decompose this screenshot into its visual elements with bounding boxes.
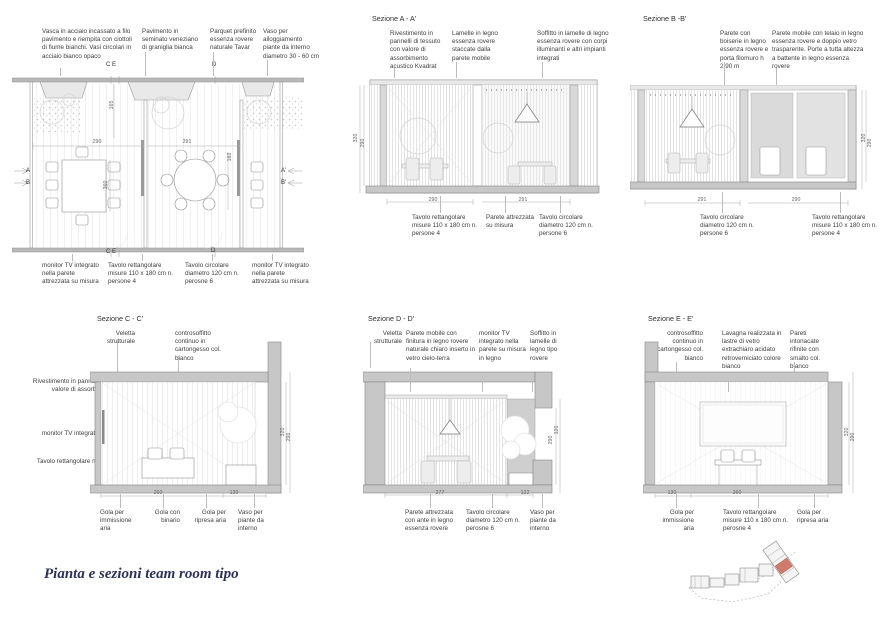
leader-line — [814, 494, 815, 508]
chair — [46, 198, 58, 208]
aa-note-parete: Parete attrezzata su misura — [486, 214, 536, 230]
leader-line — [430, 494, 431, 508]
cc-note-gola-immissione: Gola per immissione aria — [100, 509, 140, 534]
table-silhouette — [427, 456, 469, 461]
ee-dim-260: 260 — [733, 490, 742, 496]
leader-line — [840, 192, 841, 213]
leader-line — [542, 494, 543, 508]
keyplan-building — [740, 568, 758, 582]
bb-dim-h290: 290 — [867, 139, 873, 148]
chair — [161, 174, 173, 186]
plan-dim-165: 165 — [109, 101, 115, 110]
leader-line — [482, 382, 483, 392]
aa-dim-291: 291 — [519, 197, 528, 203]
leader-line — [410, 368, 411, 392]
leader-line — [213, 52, 214, 76]
keyplan-wing — [763, 541, 799, 583]
cc-note-vaso: Vaso per piante da interno — [238, 509, 278, 534]
chair — [46, 180, 58, 190]
cc-dim-260: 260 — [154, 490, 163, 496]
keyplan-building — [725, 574, 739, 585]
gravel-area — [243, 97, 302, 129]
bb-note-boiserie: Parete con boiserie in legno essenza rov… — [720, 30, 770, 71]
ceiling-band — [370, 80, 597, 85]
section-cc-title: Sezione C - C' — [97, 314, 143, 323]
floor-slab — [366, 186, 599, 193]
section-marker-a: A — [26, 168, 30, 174]
planter-box — [509, 473, 533, 485]
column — [570, 85, 578, 186]
rectangular-table — [62, 160, 106, 212]
leader-line — [254, 494, 255, 508]
leader-line — [532, 382, 533, 392]
structural-column — [535, 372, 552, 408]
bb-dim-290: 290 — [792, 197, 801, 203]
dd-note-parete-attrezzata: Parete attrezzata con ante in legno esse… — [405, 509, 463, 534]
chair — [175, 150, 187, 162]
dd-dim-122: 122 — [521, 490, 530, 496]
aa-dim-h320: 320 — [353, 134, 359, 143]
leader-line — [456, 62, 457, 78]
floor-slab — [90, 485, 281, 493]
cc-dim-h290: 290 — [286, 433, 292, 442]
leader-line — [117, 340, 118, 372]
leader-line — [370, 342, 371, 368]
cc-note-gola-binario: Gola con binario — [144, 509, 180, 525]
leader-line — [440, 196, 441, 213]
plan-top-wall — [12, 78, 304, 82]
ceiling-slab — [90, 372, 268, 382]
chair-silhouette — [760, 147, 780, 175]
sheet-title: Pianta e sezioni team room tipo — [44, 566, 239, 583]
slat-wall — [645, 90, 740, 182]
keyplan-building — [759, 564, 773, 576]
dd-dim-h290: 290 — [548, 436, 554, 445]
glass-whiteboard — [700, 402, 786, 446]
plan-dim-290: 290 — [93, 139, 102, 145]
chair — [721, 450, 734, 462]
aa-note-table-rect: Tavolo rettangolare misure 110 x 180 cm … — [412, 214, 482, 239]
leader-line — [145, 52, 146, 76]
column — [740, 90, 748, 182]
plan-dim-360: 360 — [103, 181, 109, 190]
aa-dim-h290: 290 — [360, 139, 366, 148]
table-silhouette — [518, 162, 552, 166]
leader-line — [120, 494, 121, 508]
section-aa-drawing — [358, 78, 620, 210]
keyplan-building — [710, 578, 724, 587]
bb-note-table-round: Tavolo circolare diametro 120 cm n. pers… — [700, 214, 762, 239]
leader-line — [272, 254, 273, 261]
leader-line — [206, 494, 207, 508]
chair — [251, 198, 263, 208]
section-cc-drawing — [90, 340, 295, 498]
section-aa-title: Sezione A - A' — [372, 14, 416, 23]
bb-note-parete-mobile: Parete mobile con telaio in legno essenz… — [772, 30, 866, 71]
leader-line — [794, 362, 795, 372]
column — [533, 460, 552, 485]
section-ee-title: Sezione E - E' — [648, 314, 693, 323]
chair-silhouette — [421, 461, 435, 483]
dd-note-table-round: Tavolo circolare diametro 120 cm n. pero… — [466, 509, 524, 534]
plan-note-monitor-left: monitor TV integrato nella parete attrez… — [42, 262, 100, 287]
aa-note-lamelle: Lamelle in legno essenza rovere staccate… — [452, 30, 510, 63]
leader-line — [542, 62, 543, 78]
leader-line — [178, 356, 179, 372]
section-marker-ce-top: C E — [106, 62, 116, 68]
tv-wall — [237, 140, 240, 196]
chair — [203, 150, 215, 162]
column — [638, 90, 645, 182]
leader-line — [142, 254, 143, 261]
leader-line — [505, 196, 506, 213]
chair — [170, 448, 184, 459]
ee-dim-h290: 290 — [850, 433, 856, 442]
section-marker-ce-bottom: C E — [106, 249, 116, 255]
bb-note-table-rect: Tavolo rettangolare misure 110 x 180 cm … — [812, 214, 880, 239]
column — [645, 382, 655, 485]
ceiling-slab — [363, 372, 535, 382]
wall — [280, 82, 283, 248]
partition-wall — [144, 100, 147, 248]
dd-dim-277: 277 — [436, 490, 445, 496]
aa-dim-290: 290 — [429, 197, 438, 203]
chair-silhouette — [508, 166, 520, 184]
leader-line — [60, 68, 61, 76]
section-bb-title: Sezione B -B' — [643, 14, 686, 23]
keyplan-drawing — [683, 532, 808, 614]
leader-line — [492, 494, 493, 508]
tree-icon — [218, 402, 238, 422]
plan-note-vaso: Vaso per alloggiamento piante da interno… — [263, 28, 321, 61]
chair — [46, 162, 58, 172]
column — [828, 382, 842, 485]
chair-silhouette — [696, 153, 708, 173]
chair — [76, 215, 88, 225]
leader-line — [676, 362, 677, 372]
chair — [175, 198, 187, 210]
parete-attrezzata — [473, 85, 482, 186]
tree-icon — [502, 441, 520, 459]
chair-silhouette — [544, 166, 556, 184]
chair-silhouette — [430, 158, 443, 180]
ee-note-gola-ripresa: Gola per ripresa aria — [797, 509, 839, 525]
planter — [242, 82, 274, 96]
keyplan-building — [691, 576, 709, 588]
leader-line — [728, 382, 729, 392]
aa-note-rivestimento: Rivestimento in pannelli di tessuto con … — [390, 30, 448, 71]
table — [142, 458, 194, 478]
chair — [76, 147, 88, 157]
cc-note-gola-ripresa: Gola per ripresa aria — [184, 509, 226, 525]
partition-wall — [240, 100, 243, 248]
wall — [30, 82, 33, 248]
dd-note-monitor: monitor TV integrato nella parete su mis… — [479, 330, 527, 363]
dd-dim-h320: 320 — [554, 426, 560, 435]
leader-line — [776, 68, 777, 85]
ceiling-band — [630, 85, 856, 90]
leader-line — [722, 192, 723, 213]
plan-note-pavimento: Pavimento in seminato veneziano di grani… — [142, 28, 198, 53]
leader-line — [72, 254, 73, 261]
plan-dim-291: 291 — [183, 139, 192, 145]
leader-line — [394, 68, 395, 78]
chair — [251, 162, 263, 172]
plan-drawing — [12, 76, 304, 258]
bb-dim-291: 291 — [698, 197, 707, 203]
chair-silhouette — [406, 158, 419, 180]
chair-silhouette — [668, 153, 680, 173]
dd-note-soffitto: Soffitto in lamelle di legno tipo rovere — [530, 330, 568, 363]
leader-line — [676, 494, 677, 508]
section-marker-b1: B' — [281, 180, 286, 186]
plan-bottom-wall — [12, 248, 304, 252]
ee-note-table-rect: Tavolo rettangolare misure 110 x 180 cm … — [723, 509, 795, 534]
section-dd-title: Sezione D - D' — [368, 314, 414, 323]
tv-monitor — [102, 410, 105, 444]
plan-note-parquet: Parquet prefinito essenza rovere natural… — [210, 28, 264, 53]
chair — [742, 450, 755, 462]
leader-line — [560, 196, 561, 213]
floor-slab — [630, 182, 856, 189]
section-dd-drawing — [363, 368, 581, 498]
column — [95, 382, 101, 485]
dd-note-veletta: Veletta strutturale — [366, 330, 402, 346]
chair — [251, 180, 263, 190]
leader-line — [758, 494, 759, 508]
ceiling-slab — [645, 372, 828, 382]
column — [380, 85, 387, 186]
planter — [40, 82, 87, 98]
slat-wall — [482, 85, 570, 186]
column — [848, 90, 856, 182]
planter-box — [226, 465, 256, 485]
leader-line — [212, 254, 213, 261]
chair — [148, 448, 162, 459]
chair — [217, 174, 229, 186]
ee-note-gola-immissione: Gola per immissione aria — [652, 509, 694, 534]
plan-note-table-rect: Tavolo rettangolare misure 110 x 180 cm … — [108, 262, 180, 287]
dd-note-vaso: Vaso per piante da interno — [530, 509, 568, 534]
chair-silhouette — [806, 147, 826, 175]
chair — [203, 198, 215, 210]
tv-wall — [141, 140, 144, 196]
leader-line — [267, 60, 268, 76]
leader-line — [724, 62, 725, 85]
aa-note-soffitto: Soffitto in lamelle di legno essenza rov… — [537, 30, 613, 63]
drawing-sheet: Vasca in acciaio incassato a filo pavime… — [0, 0, 880, 622]
cc-dim-130: 130 — [230, 490, 239, 496]
aa-note-table-round: Tavolo circolare diametro 120 cm n. pers… — [539, 214, 601, 239]
plan-note-table-round: Tavolo circolare diametro 120 cm n. pero… — [185, 262, 247, 287]
round-table — [174, 159, 216, 201]
plan-dim-160: 160 — [227, 153, 233, 162]
section-marker-b: B — [26, 180, 30, 186]
dd-note-parete-mobile: Parete mobile con finitura in legno rove… — [406, 330, 476, 363]
column — [365, 382, 385, 485]
section-marker-a1: A' — [281, 168, 286, 174]
lamelle-ceiling — [385, 395, 507, 399]
plan-note-vasca: Vasca in acciaio incassato a filo pavime… — [42, 28, 136, 61]
leader-line — [163, 494, 164, 508]
plan-note-monitor-right: monitor TV integrato nella parete attrez… — [252, 262, 314, 287]
chair-silhouette — [457, 461, 471, 483]
structural-column — [268, 342, 281, 493]
